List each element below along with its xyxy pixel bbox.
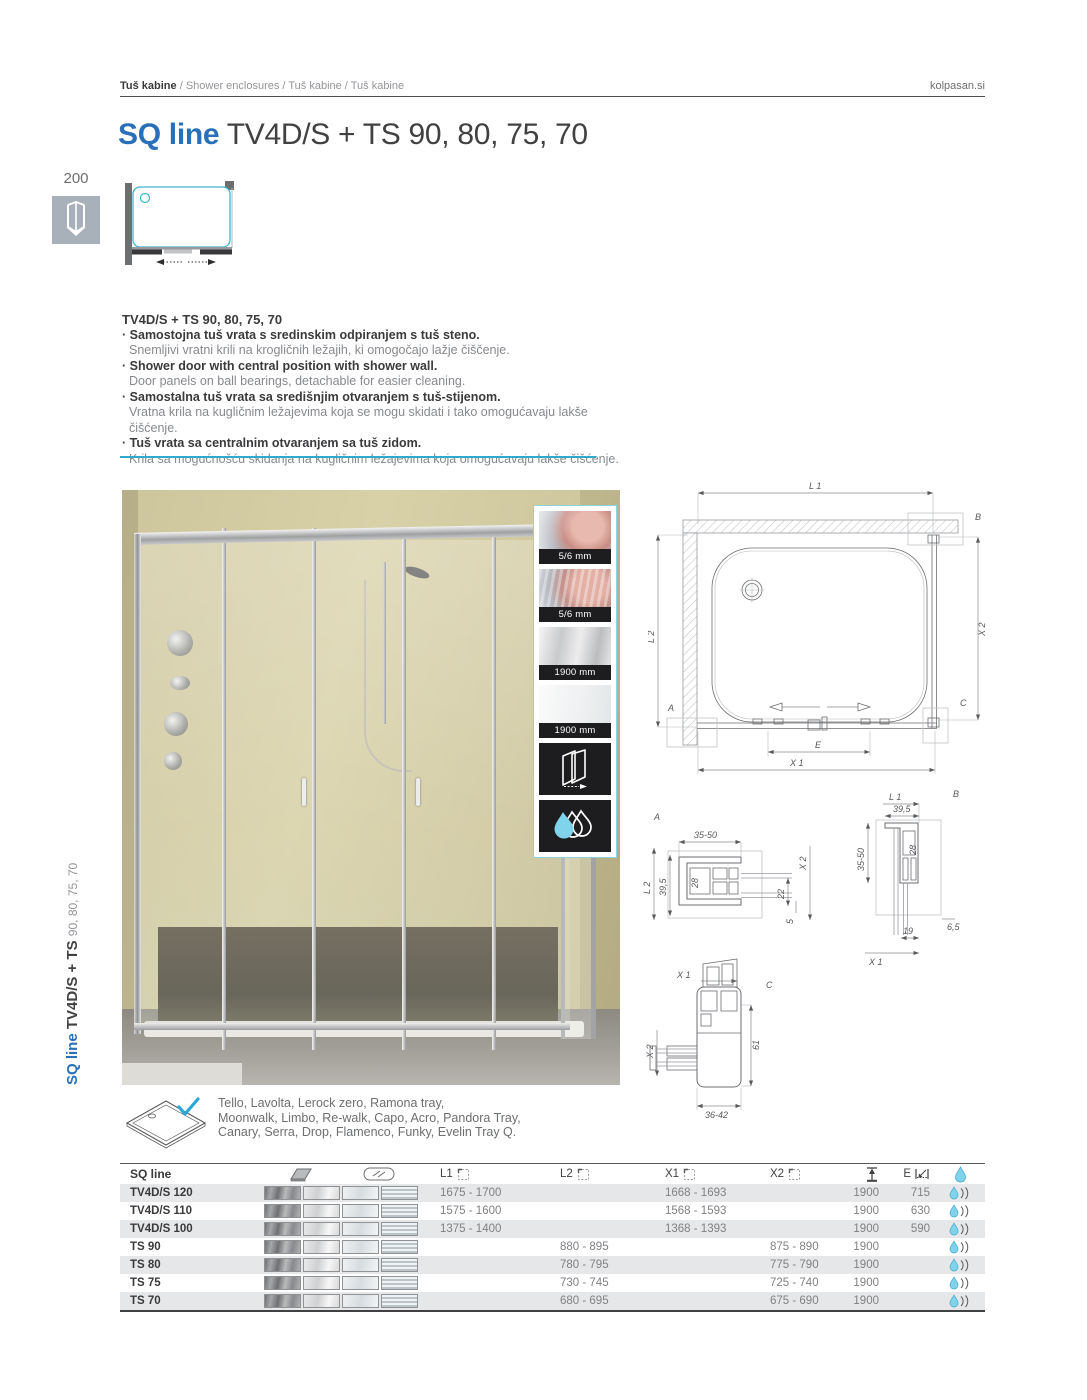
feature-glass-thickness: 5/6 mm <box>539 569 611 622</box>
table-row: TS 90 880 - 895 875 - 890 1900 <box>120 1238 985 1256</box>
description-item-sub: Vratna krila na kugličnim ležajevima koj… <box>122 405 627 436</box>
tray-compatibility-icon <box>122 1094 214 1157</box>
side-label-series: SQ line <box>64 1029 81 1085</box>
feature-label: 5/6 mm <box>539 607 611 622</box>
feature-height: 1900 mm <box>539 627 611 680</box>
detail-a-left-dim: 39,5 <box>658 877 668 896</box>
glass-swatches <box>262 1240 420 1254</box>
callout-a-label: A <box>667 703 674 713</box>
table-header-l2: L2 <box>540 1168 645 1181</box>
feature-label: 1900 mm <box>539 723 611 738</box>
page-number: 200 <box>52 170 100 187</box>
detail-b-left-dim: 35-50 <box>856 848 866 871</box>
description-item-sub: Door panels on ball bearings, detachable… <box>122 374 627 390</box>
dim-box-icon <box>577 1168 590 1181</box>
door-swing-icon <box>552 748 598 790</box>
section-divider <box>120 456 596 458</box>
detail-c-right-dim: 61 <box>751 1040 761 1050</box>
dim-l1: L 1 <box>809 481 821 491</box>
table-header-row: SQ line L1 L2 <box>120 1164 985 1184</box>
tray-compatibility-text: Tello, Lavolta, Lerock zero, Ramona tray… <box>218 1096 521 1140</box>
shower-tray-icon <box>127 1101 205 1145</box>
shower-tray <box>712 548 927 722</box>
plan-drawing: A B C L 1 L 2 X 2 E X 1 <box>648 478 1058 795</box>
description-heading: TV4D/S + TS 90, 80, 75, 70 <box>122 312 627 328</box>
water-drops-small-icon <box>948 1276 972 1291</box>
callout-c-label: C <box>960 698 967 708</box>
table-header-height <box>845 1166 887 1183</box>
product-description: TV4D/S + TS 90, 80, 75, 70 · Samostojna … <box>122 312 627 467</box>
detail-a-top-dim: 35-50 <box>694 830 717 840</box>
header-divider <box>120 96 985 97</box>
detail-a-drawing: A 35-50 L 2 39,5 28 22 5 X 2 <box>640 798 852 975</box>
dim-box-icon <box>788 1168 801 1181</box>
detail-c-axis-top: X 1 <box>676 970 691 980</box>
patterned-glass-photo-icon <box>539 569 611 607</box>
table-row: TS 75 730 - 745 725 - 740 1900 <box>120 1274 985 1292</box>
chapter-icon <box>52 196 100 244</box>
water-drops-small-icon <box>948 1222 972 1237</box>
glass-swatches <box>262 1258 420 1272</box>
entry-width-icon <box>914 1167 930 1181</box>
water-drops-small-icon <box>948 1204 972 1219</box>
door-handle <box>302 778 306 806</box>
water-drops-small-icon <box>948 1186 972 1201</box>
dim-e: E <box>815 740 822 750</box>
wall-top <box>683 520 958 533</box>
site-link[interactable]: kolpasan.si <box>120 80 985 92</box>
detail-a-label: A <box>653 812 660 822</box>
catalog-page: Tuš kabine / Shower enclosures / Tuš kab… <box>0 0 1087 1400</box>
water-drops-small-icon <box>948 1258 972 1273</box>
mini-plan-icon <box>125 178 247 270</box>
table-row: TS 80 780 - 795 775 - 790 1900 <box>120 1256 985 1274</box>
glass-photo-icon <box>539 511 611 549</box>
title-series: SQ line <box>118 118 219 151</box>
detail-a-outer-left-dim: L 2 <box>642 882 652 894</box>
feature-water-repellent <box>539 800 611 852</box>
feature-glass-thickness: 5/6 mm <box>539 511 611 564</box>
dim-x2: X 2 <box>977 622 987 637</box>
tray-line: Tello, Lavolta, Lerock zero, Ramona tray… <box>218 1096 521 1111</box>
dim-x1: X 1 <box>789 758 804 768</box>
description-item-title: · Samostojna tuš vrata s sredinskim odpi… <box>122 328 627 344</box>
glass-swatches <box>262 1186 420 1200</box>
description-item-title: · Shower door with central position with… <box>122 359 627 375</box>
detail-b-right-dim: 6,5 <box>947 922 961 932</box>
shower-enclosure-icon <box>52 196 100 244</box>
detail-c-label: C <box>766 980 773 990</box>
detail-b-inner-dim: 28 <box>908 845 918 856</box>
dim-l2: L 2 <box>648 631 656 643</box>
feature-label: 5/6 mm <box>539 549 611 564</box>
glass-swatches <box>262 1294 420 1308</box>
detail-b-label: B <box>953 789 959 799</box>
tray-line: Moonwalk, Limbo, Re-walk, Capo, Acro, Pa… <box>218 1111 521 1126</box>
detail-a-inner-dim: 28 <box>690 878 700 889</box>
check-icon <box>179 1099 198 1114</box>
side-vertical-label: SQ line TV4D/S + TS 90, 80, 75, 70 <box>64 863 81 1085</box>
feature-removable-doors <box>539 743 611 795</box>
dim-box-icon <box>457 1168 470 1181</box>
patterned-glass-icon <box>363 1166 395 1182</box>
table-row: TV4D/S 100 1375 - 1400 1368 - 1393 1900 … <box>120 1220 985 1238</box>
description-item-sub: Krila sa mogućnošću skidanja na kuglični… <box>122 452 627 468</box>
table-header-l1: L1 <box>420 1168 540 1181</box>
detail-b-drawing: B L 1 39,5 28 35-50 6,5 19 X 1 <box>843 783 1001 976</box>
side-label-sizes: 90, 80, 75, 70 <box>66 863 80 936</box>
description-item-title: · Tuš vrata sa centralnim otvaranjem sa … <box>122 436 627 452</box>
detail-b-top-dim: 39,5 <box>893 804 912 814</box>
table-header-x2: X2 <box>750 1168 845 1181</box>
water-drops-small-icon <box>948 1294 972 1309</box>
description-item-title: · Samostalna tuš vrata sa središnjim otv… <box>122 390 627 406</box>
door-handle <box>416 778 420 806</box>
tray-line: Canary, Serra, Drop, Flamenco, Funky, Ev… <box>218 1125 521 1140</box>
detail-a-bottom-dim: 5 <box>785 918 795 924</box>
glass-swatches <box>262 1222 420 1236</box>
glass-swatches <box>262 1276 420 1290</box>
table-header-e: E <box>887 1167 935 1181</box>
table-row: TV4D/S 120 1675 - 1700 1668 - 1693 1900 … <box>120 1184 985 1202</box>
glass-swatches <box>262 1204 420 1218</box>
dimensions-table: SQ line L1 L2 <box>120 1163 985 1312</box>
water-drop-icon <box>954 1166 967 1183</box>
detail-a-right-dim: 22 <box>776 889 786 900</box>
feature-tiles: 5/6 mm 5/6 mm 1900 mm 1900 mm <box>533 505 617 858</box>
table-header-x1: X1 <box>645 1168 750 1181</box>
table-header-glass-icons <box>262 1166 420 1183</box>
detail-a-axis: X 2 <box>798 856 808 871</box>
mini-diagram <box>125 178 247 275</box>
height-icon <box>865 1166 879 1183</box>
detail-b-bottom-dim: 19 <box>903 926 913 936</box>
description-item-sub: Snemljivi vratni krili na krogličnih lež… <box>122 343 627 359</box>
callout-b-label: B <box>975 512 981 522</box>
side-label-model: TV4D/S + TS <box>64 936 81 1029</box>
glass-sheet-icon <box>288 1166 314 1183</box>
detail-c-drawing: X 1 C X 2 61 36-42 <box>643 958 880 1140</box>
feature-label: 1900 mm <box>539 665 611 680</box>
dim-box-icon <box>683 1168 696 1181</box>
gray-glass-icon <box>539 627 611 665</box>
table-header-series: SQ line <box>120 1167 262 1181</box>
feature-height: 1900 mm <box>539 685 611 738</box>
detail-b-axis-top: L 1 <box>889 792 901 802</box>
page-title: SQ line TV4D/S + TS 90, 80, 75, 70 <box>118 118 588 152</box>
title-model: TV4D/S + TS 90, 80, 75, 70 <box>227 118 588 151</box>
table-row: TS 70 680 - 695 675 - 690 1900 <box>120 1292 985 1310</box>
water-drops-small-icon <box>948 1240 972 1255</box>
wall-left <box>683 533 697 745</box>
detail-c-bottom-dim: 36-42 <box>705 1110 728 1120</box>
table-row: TV4D/S 110 1575 - 1600 1568 - 1593 1900 … <box>120 1202 985 1220</box>
shower-enclosure <box>134 528 596 1050</box>
water-drops-icon <box>550 808 600 844</box>
table-header-drop <box>935 1166 985 1183</box>
clear-glass-icon <box>539 685 611 723</box>
